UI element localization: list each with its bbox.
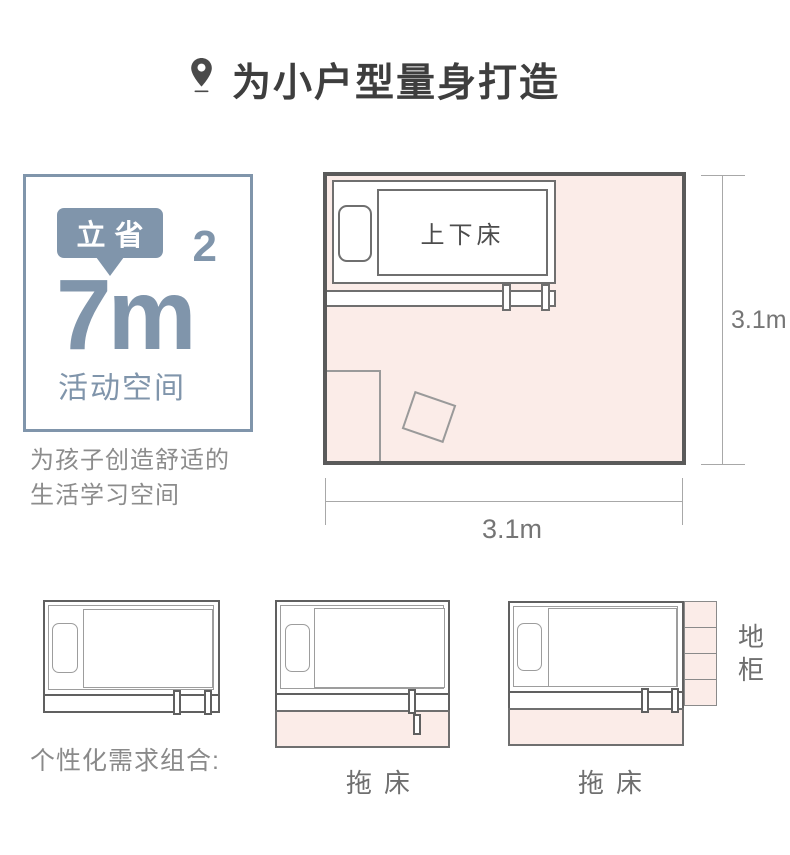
pillow (338, 205, 372, 262)
description-line-1: 为孩子创造舒适的 (30, 443, 230, 478)
diagram-pillow (52, 623, 78, 673)
diagram-rail (43, 694, 220, 713)
diagram-mattress (548, 608, 677, 687)
diagram-trundle-bed (508, 708, 684, 746)
dimension-line-horizontal (325, 501, 683, 502)
option-diagram-trundle-cabinet (508, 601, 718, 748)
diagram-cabinet-cell (684, 653, 717, 680)
ladder-post (541, 284, 550, 311)
diagram-ladder-post (204, 690, 212, 715)
trundle-label: 拖床 (346, 763, 422, 800)
dimension-cap (701, 464, 745, 465)
area-exponent: 2 (193, 222, 217, 271)
floor-plan-room: 上下床 (323, 172, 686, 465)
diagram-trundle-bed (275, 710, 450, 748)
description-text: 为孩子创造舒适的 生活学习空间 (30, 443, 230, 513)
dimension-cap (682, 478, 683, 525)
diagram-pillow (517, 623, 542, 671)
page-title: 为小户型量身打造 (232, 52, 560, 108)
location-pin-icon (190, 57, 213, 100)
dimension-label-width: 3.1m (482, 514, 542, 545)
area-number: 7 (56, 259, 108, 371)
area-unit: m (108, 259, 193, 371)
mattress: 上下床 (377, 189, 548, 276)
diagram-cabinet-cell (684, 601, 717, 628)
dimension-line-vertical (722, 175, 723, 465)
option-diagram-trundle (275, 600, 451, 748)
option-diagram-bunk-bed (43, 600, 221, 716)
diagram-ladder-post (671, 688, 679, 713)
ladder-post (502, 284, 511, 311)
diagram-cabinet-cell (684, 627, 717, 654)
trundle-label: 拖床 (578, 763, 654, 800)
options-heading: 个性化需求组合: (30, 741, 220, 777)
diagram-mattress (314, 608, 445, 688)
dimension-label-height: 3.1m (731, 306, 787, 335)
area-saved-value: 7m2 (56, 265, 217, 365)
dimension-cap (701, 175, 745, 176)
savings-panel: 立省 7m2 活动空间 (23, 174, 253, 432)
diagram-trundle-handle (413, 714, 421, 735)
diagram-cabinet-cell (684, 679, 717, 706)
diagram-ladder-post (641, 688, 649, 713)
diagram-mattress (83, 609, 213, 688)
diagram-ladder-post (173, 690, 181, 715)
description-line-2: 生活学习空间 (30, 478, 230, 513)
dimension-cap (325, 478, 326, 525)
stool-outline (402, 391, 457, 443)
floor-cabinet-label: 地柜 (736, 621, 766, 687)
diagram-ladder-post (408, 689, 416, 714)
savings-badge: 立省 (57, 208, 163, 258)
savings-caption: 活动空间 (58, 363, 186, 407)
bed-label: 上下床 (421, 215, 505, 250)
diagram-pillow (285, 624, 310, 672)
desk-outline (327, 370, 381, 461)
bed-rail (327, 290, 556, 307)
